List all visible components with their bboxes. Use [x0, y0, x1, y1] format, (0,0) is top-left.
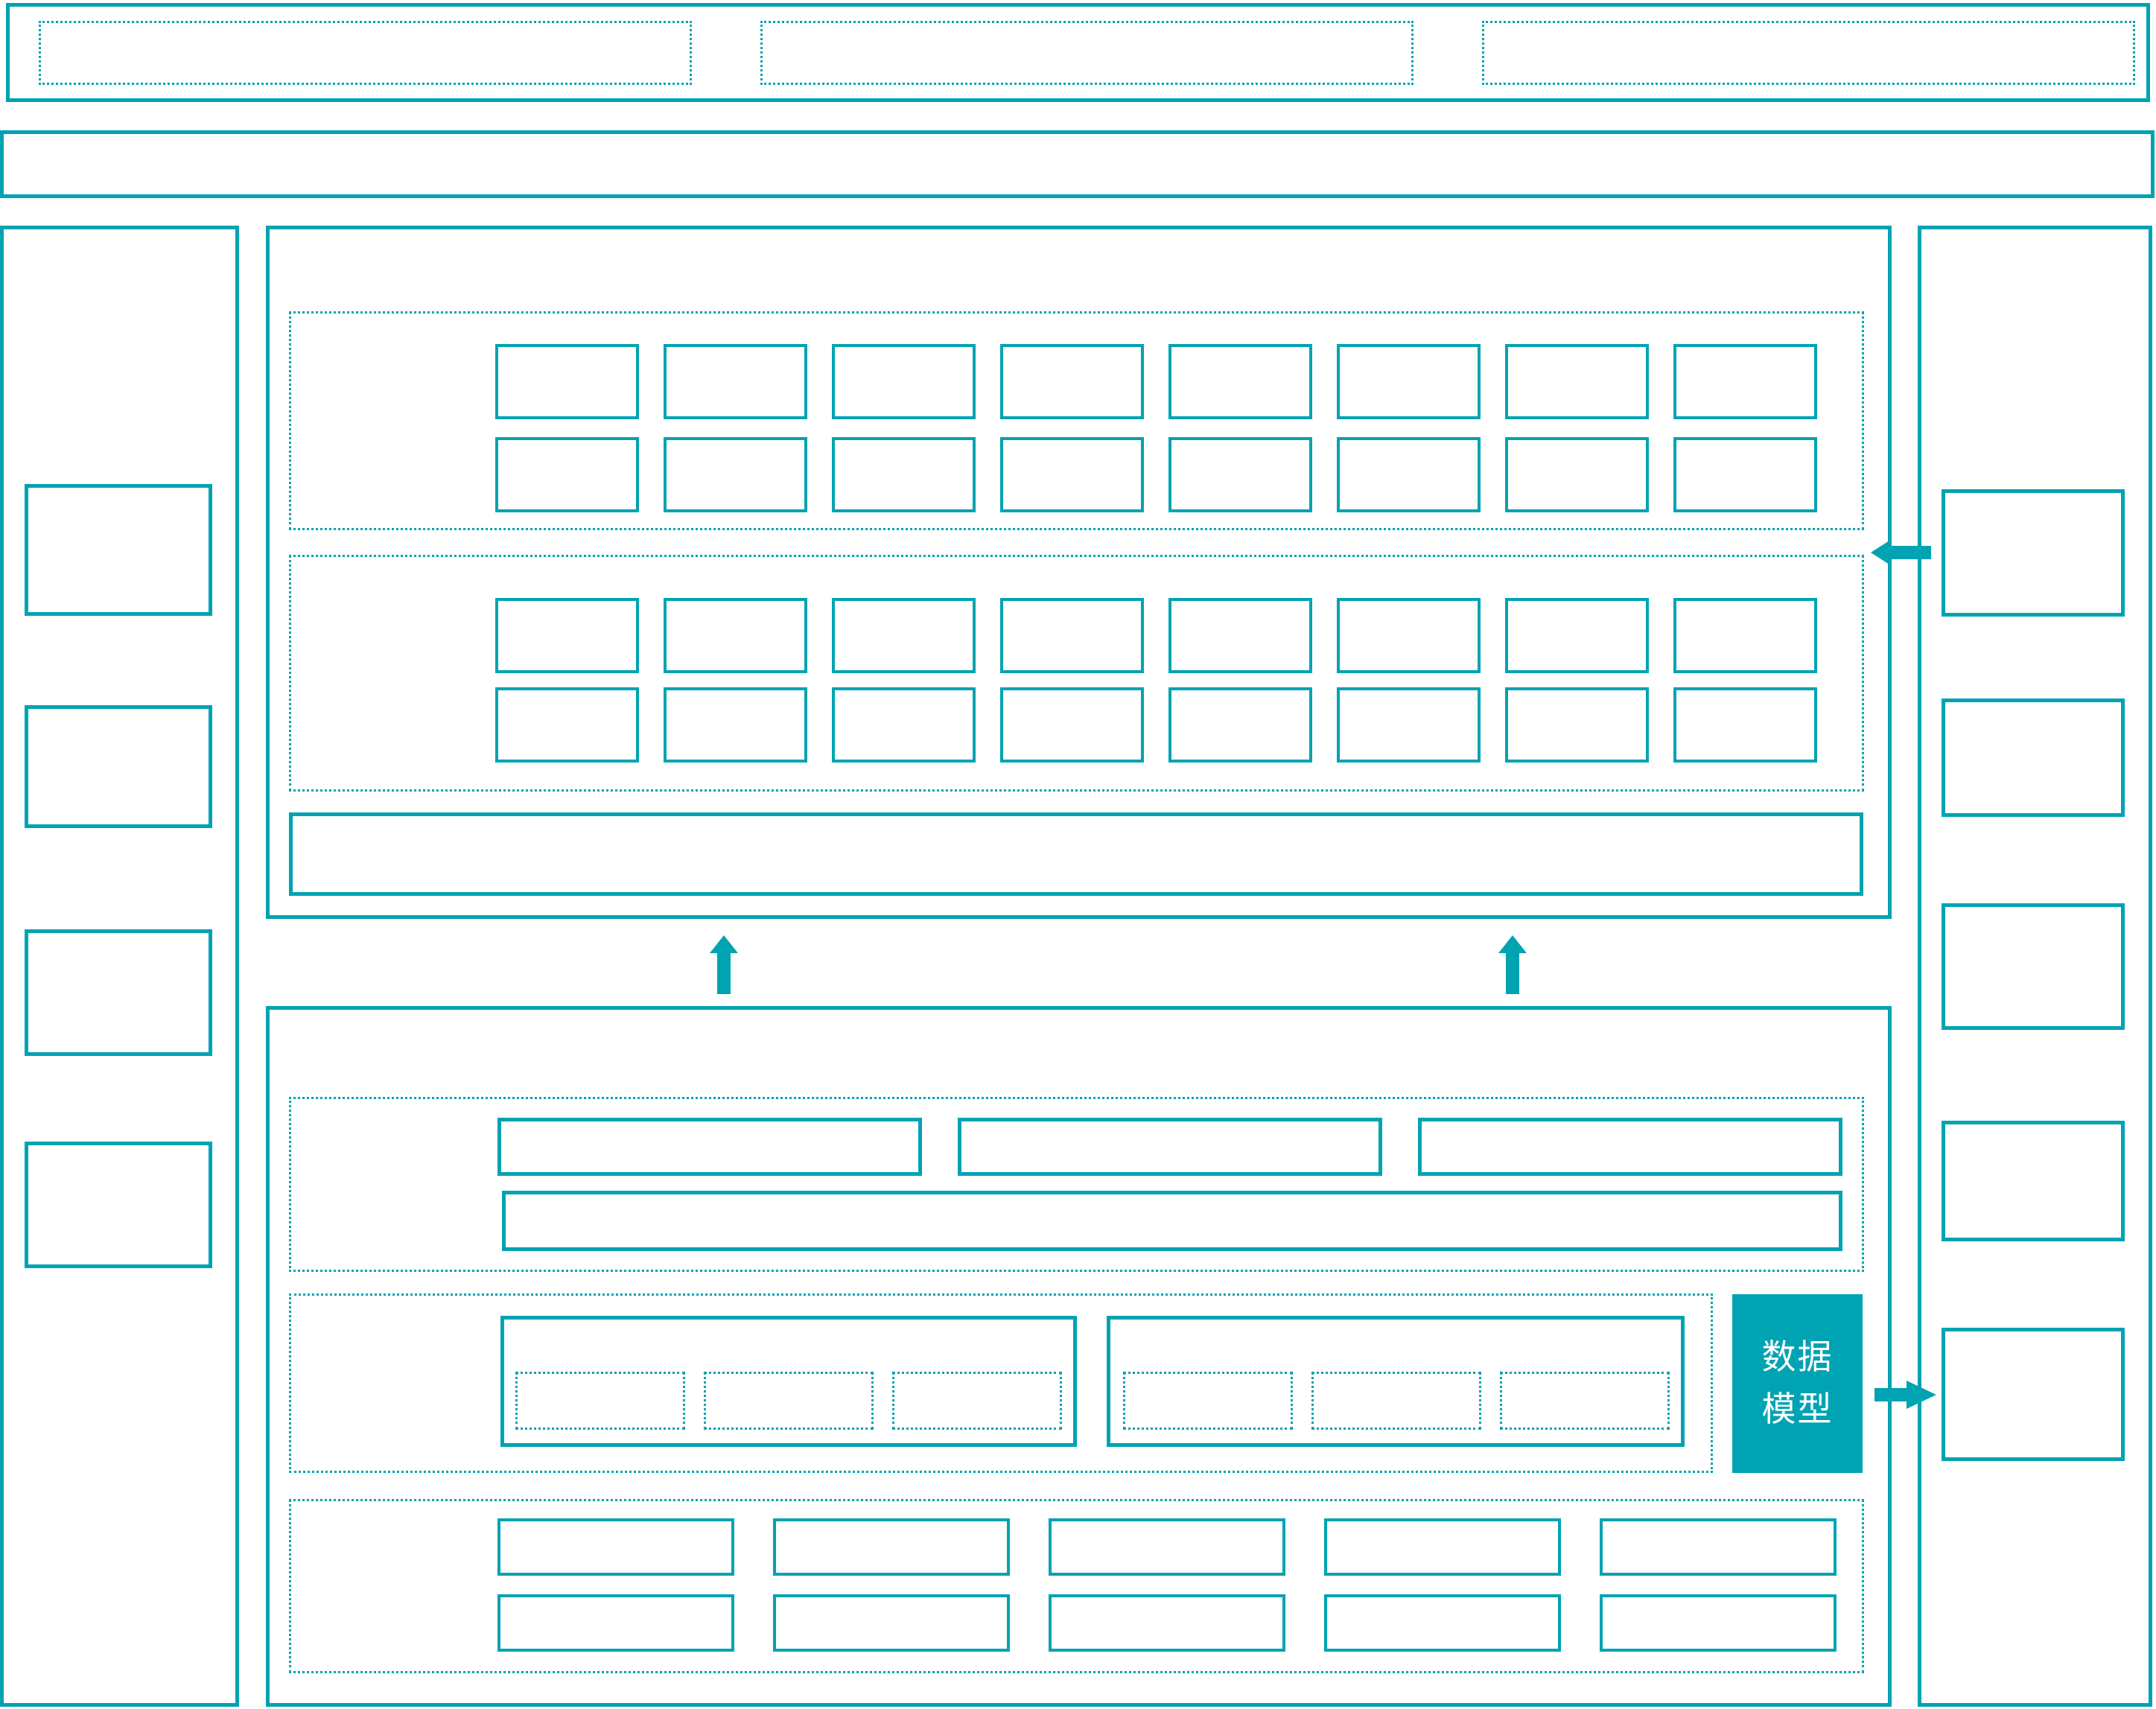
grid-box [497, 1594, 734, 1652]
grid-box [1673, 344, 1817, 419]
layer-b-row [495, 598, 1817, 673]
full-width-bar [502, 1191, 1842, 1251]
left-arrow-icon [1871, 539, 1931, 566]
grid-box [1673, 598, 1817, 673]
grid-box [832, 687, 976, 763]
module-slot [1123, 1372, 1293, 1430]
sidebar-box [1942, 1328, 2125, 1461]
lower-layer-top [289, 1097, 1864, 1272]
grid-box [1000, 687, 1144, 763]
right-sidebar [1918, 226, 2152, 1707]
sidebar-box [25, 1142, 212, 1268]
sidebar-box [1942, 1121, 2125, 1241]
up-arrow-icon [1498, 935, 1527, 994]
grid-box [664, 687, 807, 763]
module-slot [1311, 1372, 1481, 1430]
grid-box [1168, 687, 1312, 763]
grid-box [1600, 1518, 1837, 1576]
grid-box [1505, 687, 1649, 763]
grid-box [1673, 687, 1817, 763]
module-slot-row [1123, 1372, 1670, 1430]
grid-box [1049, 1594, 1285, 1652]
upper-bottom-bar [289, 812, 1863, 896]
grid-box [664, 437, 807, 512]
lower-layer-middle [289, 1293, 1713, 1473]
layer-a-row [495, 344, 1817, 419]
grid-box [1505, 598, 1649, 673]
up-arrow-icon [710, 935, 738, 994]
grid-box [1505, 437, 1649, 512]
grid-box [495, 344, 639, 419]
upper-layer-b [289, 555, 1864, 792]
grid-box [1673, 437, 1817, 512]
grid-box [1600, 1594, 1837, 1652]
grid-box [832, 598, 976, 673]
grid-box [1337, 344, 1481, 419]
sidebar-box [1942, 698, 2125, 817]
module-group [500, 1316, 1077, 1447]
grid-box [495, 687, 639, 763]
grid-box [664, 598, 807, 673]
grid-box [773, 1594, 1010, 1652]
bottom-grid-row [497, 1518, 1837, 1576]
lower-layer-bottom [289, 1499, 1864, 1673]
grid-box [1337, 598, 1481, 673]
grid-box [1168, 437, 1312, 512]
grid-box [1337, 437, 1481, 512]
wide-box-row [497, 1118, 1842, 1176]
sidebar-box [1942, 489, 2125, 617]
bottom-grid-row [497, 1594, 1837, 1652]
grid-box [832, 437, 976, 512]
data-model-box: 数据 模型 [1732, 1294, 1863, 1473]
header-band [0, 130, 2155, 198]
grid-box [1049, 1518, 1285, 1576]
wide-box [497, 1118, 922, 1176]
grid-box [495, 437, 639, 512]
module-group [1107, 1316, 1685, 1447]
module-slot [1500, 1372, 1670, 1430]
upper-layer-a [289, 311, 1864, 530]
grid-box [1168, 344, 1312, 419]
grid-box [773, 1518, 1010, 1576]
grid-box [495, 598, 639, 673]
grid-box [664, 344, 807, 419]
grid-box [1168, 598, 1312, 673]
data-model-label: 数据 模型 [1762, 1331, 1834, 1436]
upper-panel [266, 226, 1892, 919]
top-banner [6, 3, 2150, 102]
top-banner-slot [1482, 21, 2135, 85]
sidebar-box [25, 705, 212, 828]
left-sidebar [0, 226, 239, 1707]
top-banner-slot [760, 21, 1414, 85]
wide-box [958, 1118, 1382, 1176]
module-slot [515, 1372, 685, 1430]
grid-box [1000, 598, 1144, 673]
sidebar-box [1942, 903, 2125, 1030]
module-slot-row [515, 1372, 1062, 1430]
lower-panel [266, 1006, 1892, 1707]
module-slot [704, 1372, 874, 1430]
grid-box [832, 344, 976, 419]
grid-box [1505, 344, 1649, 419]
grid-box [1337, 687, 1481, 763]
top-banner-slot [39, 21, 692, 85]
module-slot [892, 1372, 1062, 1430]
grid-box [1000, 437, 1144, 512]
grid-box [497, 1518, 734, 1576]
layer-a-row [495, 437, 1817, 512]
wide-box [1418, 1118, 1842, 1176]
right-arrow-icon [1874, 1381, 1936, 1409]
grid-box [1324, 1518, 1561, 1576]
sidebar-box [25, 484, 212, 616]
layer-b-row [495, 687, 1817, 763]
grid-box [1324, 1594, 1561, 1652]
sidebar-box [25, 929, 212, 1056]
grid-box [1000, 344, 1144, 419]
